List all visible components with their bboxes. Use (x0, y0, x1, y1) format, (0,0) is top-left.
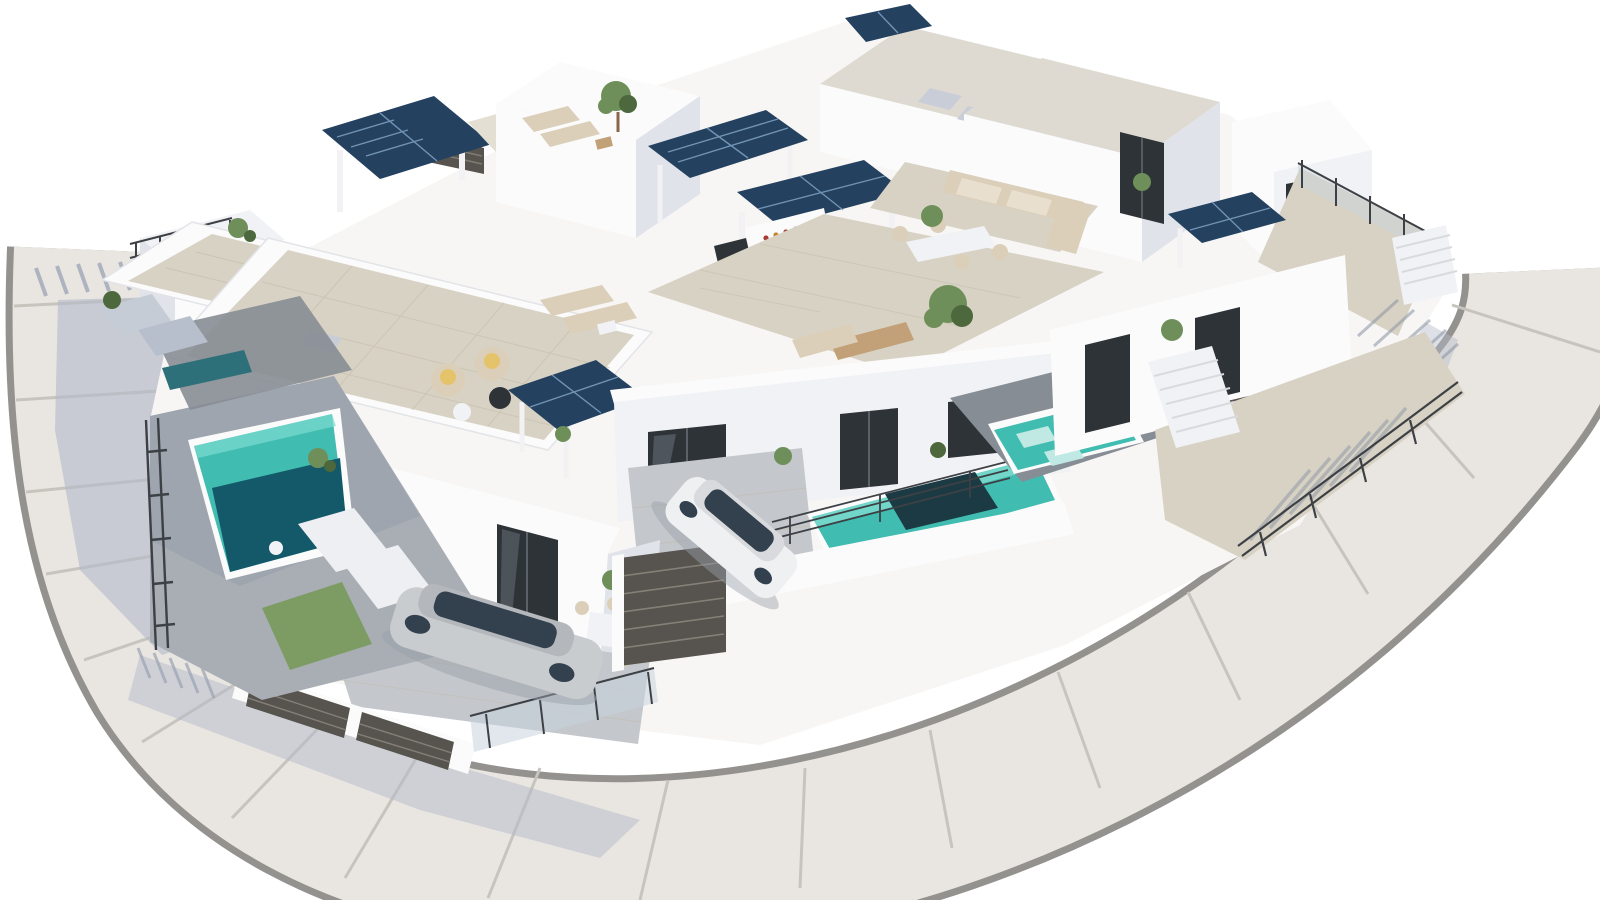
potted-plant (1161, 319, 1183, 341)
potted-plant (774, 447, 792, 465)
external-stairs-right (1392, 225, 1458, 305)
villa-complex-render (0, 0, 1600, 900)
sliding-glass-door (1085, 334, 1130, 433)
gate-pillar (612, 554, 624, 672)
plant (103, 291, 121, 309)
potted-plant (324, 460, 336, 472)
plant-back-left (244, 230, 256, 242)
round-table (489, 387, 511, 409)
sliding-glass-door (840, 408, 898, 490)
potted-plant (930, 442, 946, 458)
side-table (269, 541, 283, 555)
plant-right (1133, 173, 1151, 191)
render-canvas (0, 0, 1600, 900)
potted-plant (555, 426, 571, 442)
